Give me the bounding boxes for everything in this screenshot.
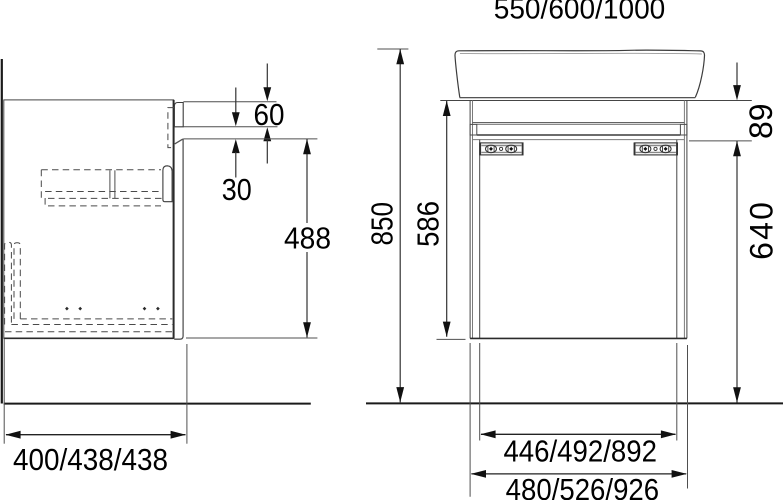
svg-text:586: 586 <box>411 201 445 247</box>
svg-text:488: 488 <box>284 221 331 255</box>
svg-text:30: 30 <box>222 173 252 207</box>
svg-text:60: 60 <box>254 98 285 132</box>
svg-text:550/600/1000: 550/600/1000 <box>494 0 666 26</box>
svg-text:89: 89 <box>743 103 779 139</box>
svg-text:640: 640 <box>744 200 780 260</box>
svg-text:480/526/926: 480/526/926 <box>506 473 660 500</box>
svg-text:400/438/438: 400/438/438 <box>13 443 168 477</box>
svg-text:850: 850 <box>365 202 399 246</box>
svg-text:446/492/892: 446/492/892 <box>503 435 657 469</box>
